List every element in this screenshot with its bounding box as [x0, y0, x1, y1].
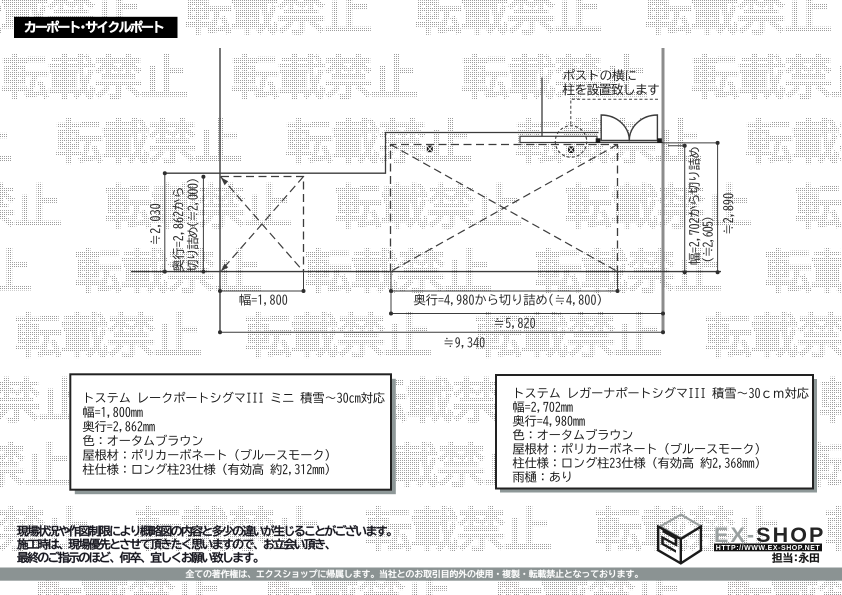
svg-text:EX-SHOP: EX-SHOP: [714, 523, 825, 547]
svg-text:HTTP://WWW.EX-SHOP.NET: HTTP://WWW.EX-SHOP.NET: [716, 545, 821, 552]
